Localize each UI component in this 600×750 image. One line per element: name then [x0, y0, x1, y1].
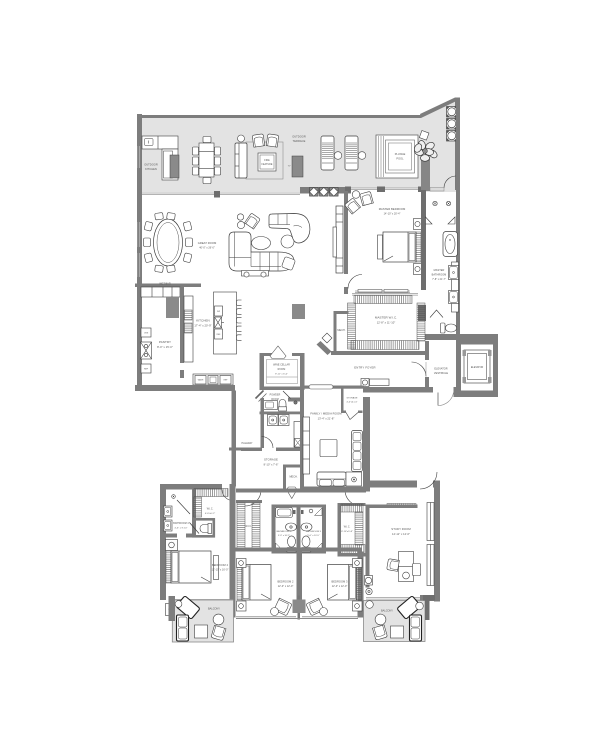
svg-text:12'-0" x 12'-0": 12'-0" x 12'-0": [278, 585, 294, 588]
svg-text:4'-0"x4'-11": 4'-0"x4'-11": [347, 402, 358, 404]
svg-text:STUDY ROOM: STUDY ROOM: [391, 527, 411, 531]
svg-text:ELEVATOR: ELEVATOR: [471, 366, 484, 369]
svg-text:PANTRY: PANTRY: [159, 340, 171, 344]
svg-text:12'-0" x 12'-0": 12'-0" x 12'-0": [332, 585, 348, 588]
svg-text:BEDROOM 3: BEDROOM 3: [331, 580, 348, 584]
svg-text:BEDROOM 4: BEDROOM 4: [212, 563, 229, 567]
svg-text:WASH: WASH: [198, 379, 204, 382]
svg-text:W.I.C.: W.I.C.: [245, 526, 252, 528]
svg-text:WET BAR: WET BAR: [159, 283, 171, 286]
svg-text:8'-0" x 15'-0": 8'-0" x 15'-0": [157, 345, 173, 349]
svg-text:8'-10" x 7'-6": 8'-10" x 7'-6": [264, 463, 279, 466]
svg-text:POWDER: POWDER: [270, 395, 281, 397]
svg-text:DW: DW: [217, 311, 220, 313]
svg-text:FAMILY / MEDIA ROOM: FAMILY / MEDIA ROOM: [310, 412, 342, 416]
svg-text:STORAGE: STORAGE: [264, 458, 278, 462]
svg-text:BATHROOM: BATHROOM: [432, 274, 447, 277]
svg-text:MASTER BEDROOM: MASTER BEDROOM: [379, 207, 406, 211]
svg-text:4'-6" x 9'-10": 4'-6" x 9'-10": [175, 527, 188, 529]
svg-text:ELEVATOR: ELEVATOR: [434, 368, 447, 371]
svg-text:ROOM: ROOM: [278, 368, 286, 371]
svg-text:BALCONY: BALCONY: [208, 608, 220, 611]
svg-text:12'-8" x 11'-10": 12'-8" x 11'-10": [377, 321, 396, 325]
svg-text:9'-11" x 6'-6": 9'-11" x 6'-6": [275, 373, 288, 375]
svg-text:5'-0" x 10'-5": 5'-0" x 10'-5": [307, 535, 320, 537]
svg-text:17'-4" x 20'-9": 17'-4" x 20'-9": [194, 324, 211, 328]
svg-text:BATHROOM 3: BATHROOM 3: [306, 530, 322, 533]
svg-text:TERRACE: TERRACE: [293, 139, 306, 143]
svg-text:HALLWAY: HALLWAY: [242, 442, 253, 445]
svg-text:FEATURE: FEATURE: [262, 163, 273, 166]
svg-text:13'-4" x 21'-8": 13'-4" x 21'-8": [318, 416, 335, 420]
svg-text:40'-0" x 26'-0": 40'-0" x 26'-0": [199, 247, 215, 250]
svg-text:8'-10"x5'-8": 8'-10"x5'-8": [341, 531, 353, 533]
svg-text:KITCHEN: KITCHEN: [196, 319, 210, 323]
svg-text:PLUNGE: PLUNGE: [395, 153, 406, 156]
svg-text:OUTDOOR: OUTDOOR: [292, 135, 306, 139]
svg-text:OVN: OVN: [144, 333, 149, 335]
svg-text:MASTER: MASTER: [434, 269, 445, 272]
svg-text:GREAT ROOM: GREAT ROOM: [198, 241, 217, 245]
svg-text:MECH.: MECH.: [289, 476, 297, 479]
svg-text:MECH.: MECH.: [337, 329, 346, 332]
svg-text:VESTIBULE: VESTIBULE: [434, 372, 448, 375]
svg-text:ROOM: ROOM: [271, 399, 278, 401]
svg-text:14'-10" x 20'-4": 14'-10" x 20'-4": [384, 213, 401, 216]
svg-text:BATHROOM 2: BATHROOM 2: [277, 530, 293, 533]
svg-text:12'-10" x 16'-0": 12'-10" x 16'-0": [212, 569, 229, 572]
svg-text:ENTRY FOYER: ENTRY FOYER: [354, 366, 375, 370]
svg-text:POOL: POOL: [396, 158, 404, 161]
svg-text:FIRE: FIRE: [264, 160, 270, 162]
svg-text:W.I.C.: W.I.C.: [207, 509, 214, 511]
svg-text:KITCHEN: KITCHEN: [145, 167, 157, 171]
svg-text:WINE CELLAR: WINE CELLAR: [273, 364, 290, 367]
svg-text:14'-11" x 12'-6": 14'-11" x 12'-6": [392, 532, 410, 536]
svg-text:MASTER W.I.C.: MASTER W.I.C.: [375, 316, 397, 320]
svg-text:7'-8" x 21'-7": 7'-8" x 21'-7": [432, 279, 446, 281]
svg-text:W.I.C.: W.I.C.: [344, 527, 351, 529]
svg-text:4'-6"x6'-2": 4'-6"x6'-2": [205, 513, 216, 515]
svg-text:OUTDOOR: OUTDOOR: [144, 163, 158, 167]
svg-text:5'-0" x 10'-5": 5'-0" x 10'-5": [278, 535, 291, 537]
svg-text:BEDROOM 2: BEDROOM 2: [277, 580, 294, 584]
svg-text:BALCONY: BALCONY: [381, 610, 393, 613]
svg-text:STORAGE: STORAGE: [346, 397, 357, 400]
svg-text:BATHROOM 4: BATHROOM 4: [173, 522, 189, 525]
